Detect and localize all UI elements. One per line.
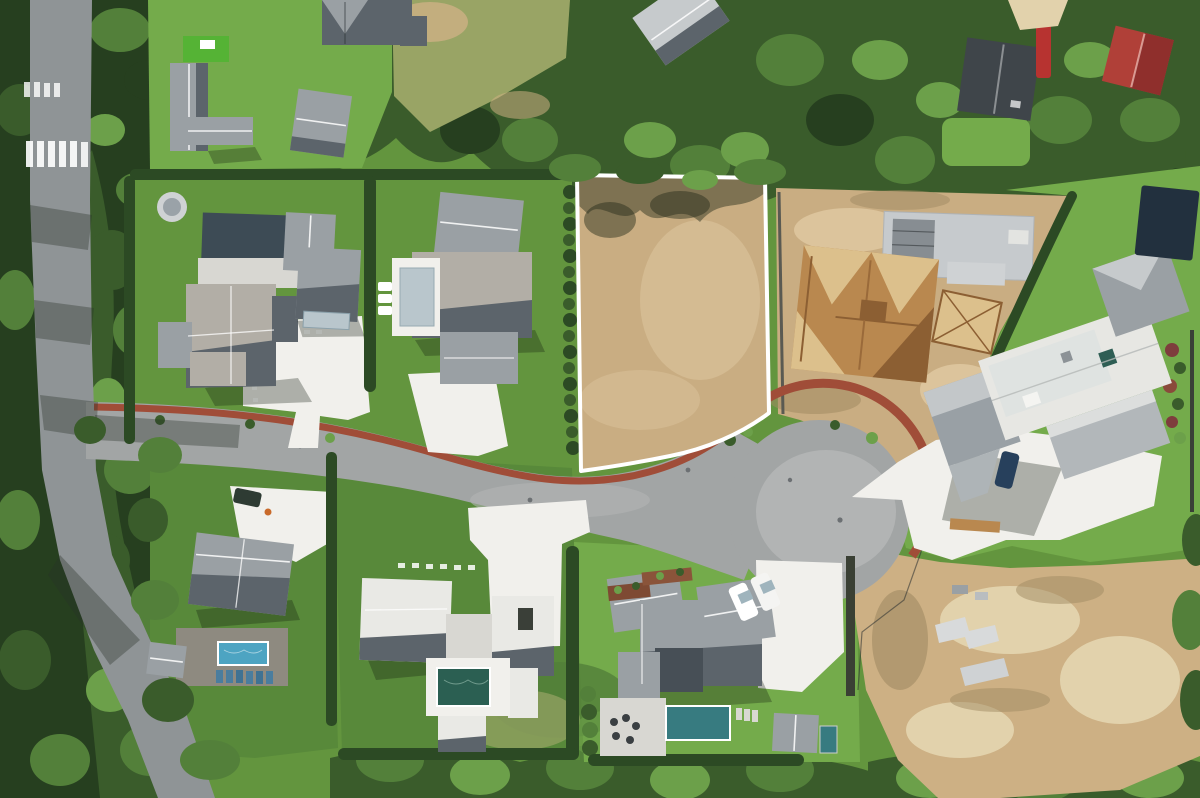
courtyard-f — [655, 648, 703, 692]
red-truck — [1036, 20, 1051, 78]
wood-garage-frame — [932, 290, 1002, 353]
hedge-bc — [364, 176, 376, 392]
forest-clearing — [942, 118, 1030, 166]
pool-house-d — [146, 642, 187, 678]
wall-f-east — [846, 556, 855, 696]
pool-e — [437, 668, 490, 706]
aerial-photo — [0, 0, 1200, 798]
house-top-dark — [322, 0, 412, 45]
sport-court — [201, 212, 291, 263]
pool-d — [218, 642, 268, 665]
highlighted-lot — [563, 175, 769, 471]
machinery — [952, 585, 968, 594]
pool-house-f — [772, 713, 819, 753]
pool-c-covered — [400, 268, 434, 326]
house-meadow-small — [400, 16, 427, 46]
house-cabin-2 — [290, 89, 352, 158]
outdoor-kitchen — [518, 608, 533, 630]
aerial-photo-canvas — [0, 0, 1200, 798]
hedge-top-boundary — [130, 169, 566, 180]
hedge-de — [326, 452, 337, 726]
parked-cars-c — [378, 282, 392, 315]
hedge-ef — [566, 546, 579, 760]
loungers-f — [736, 708, 758, 722]
spa-f — [820, 726, 837, 753]
pool-b-covered — [303, 311, 350, 329]
hedge-left-boundary — [124, 176, 135, 444]
pool-covered-mansion — [1135, 185, 1200, 261]
daybed — [200, 40, 215, 49]
house-top-right-dark — [957, 37, 1041, 121]
pool-f — [666, 706, 730, 740]
house-under-construction — [791, 245, 939, 383]
equipment — [265, 509, 272, 516]
